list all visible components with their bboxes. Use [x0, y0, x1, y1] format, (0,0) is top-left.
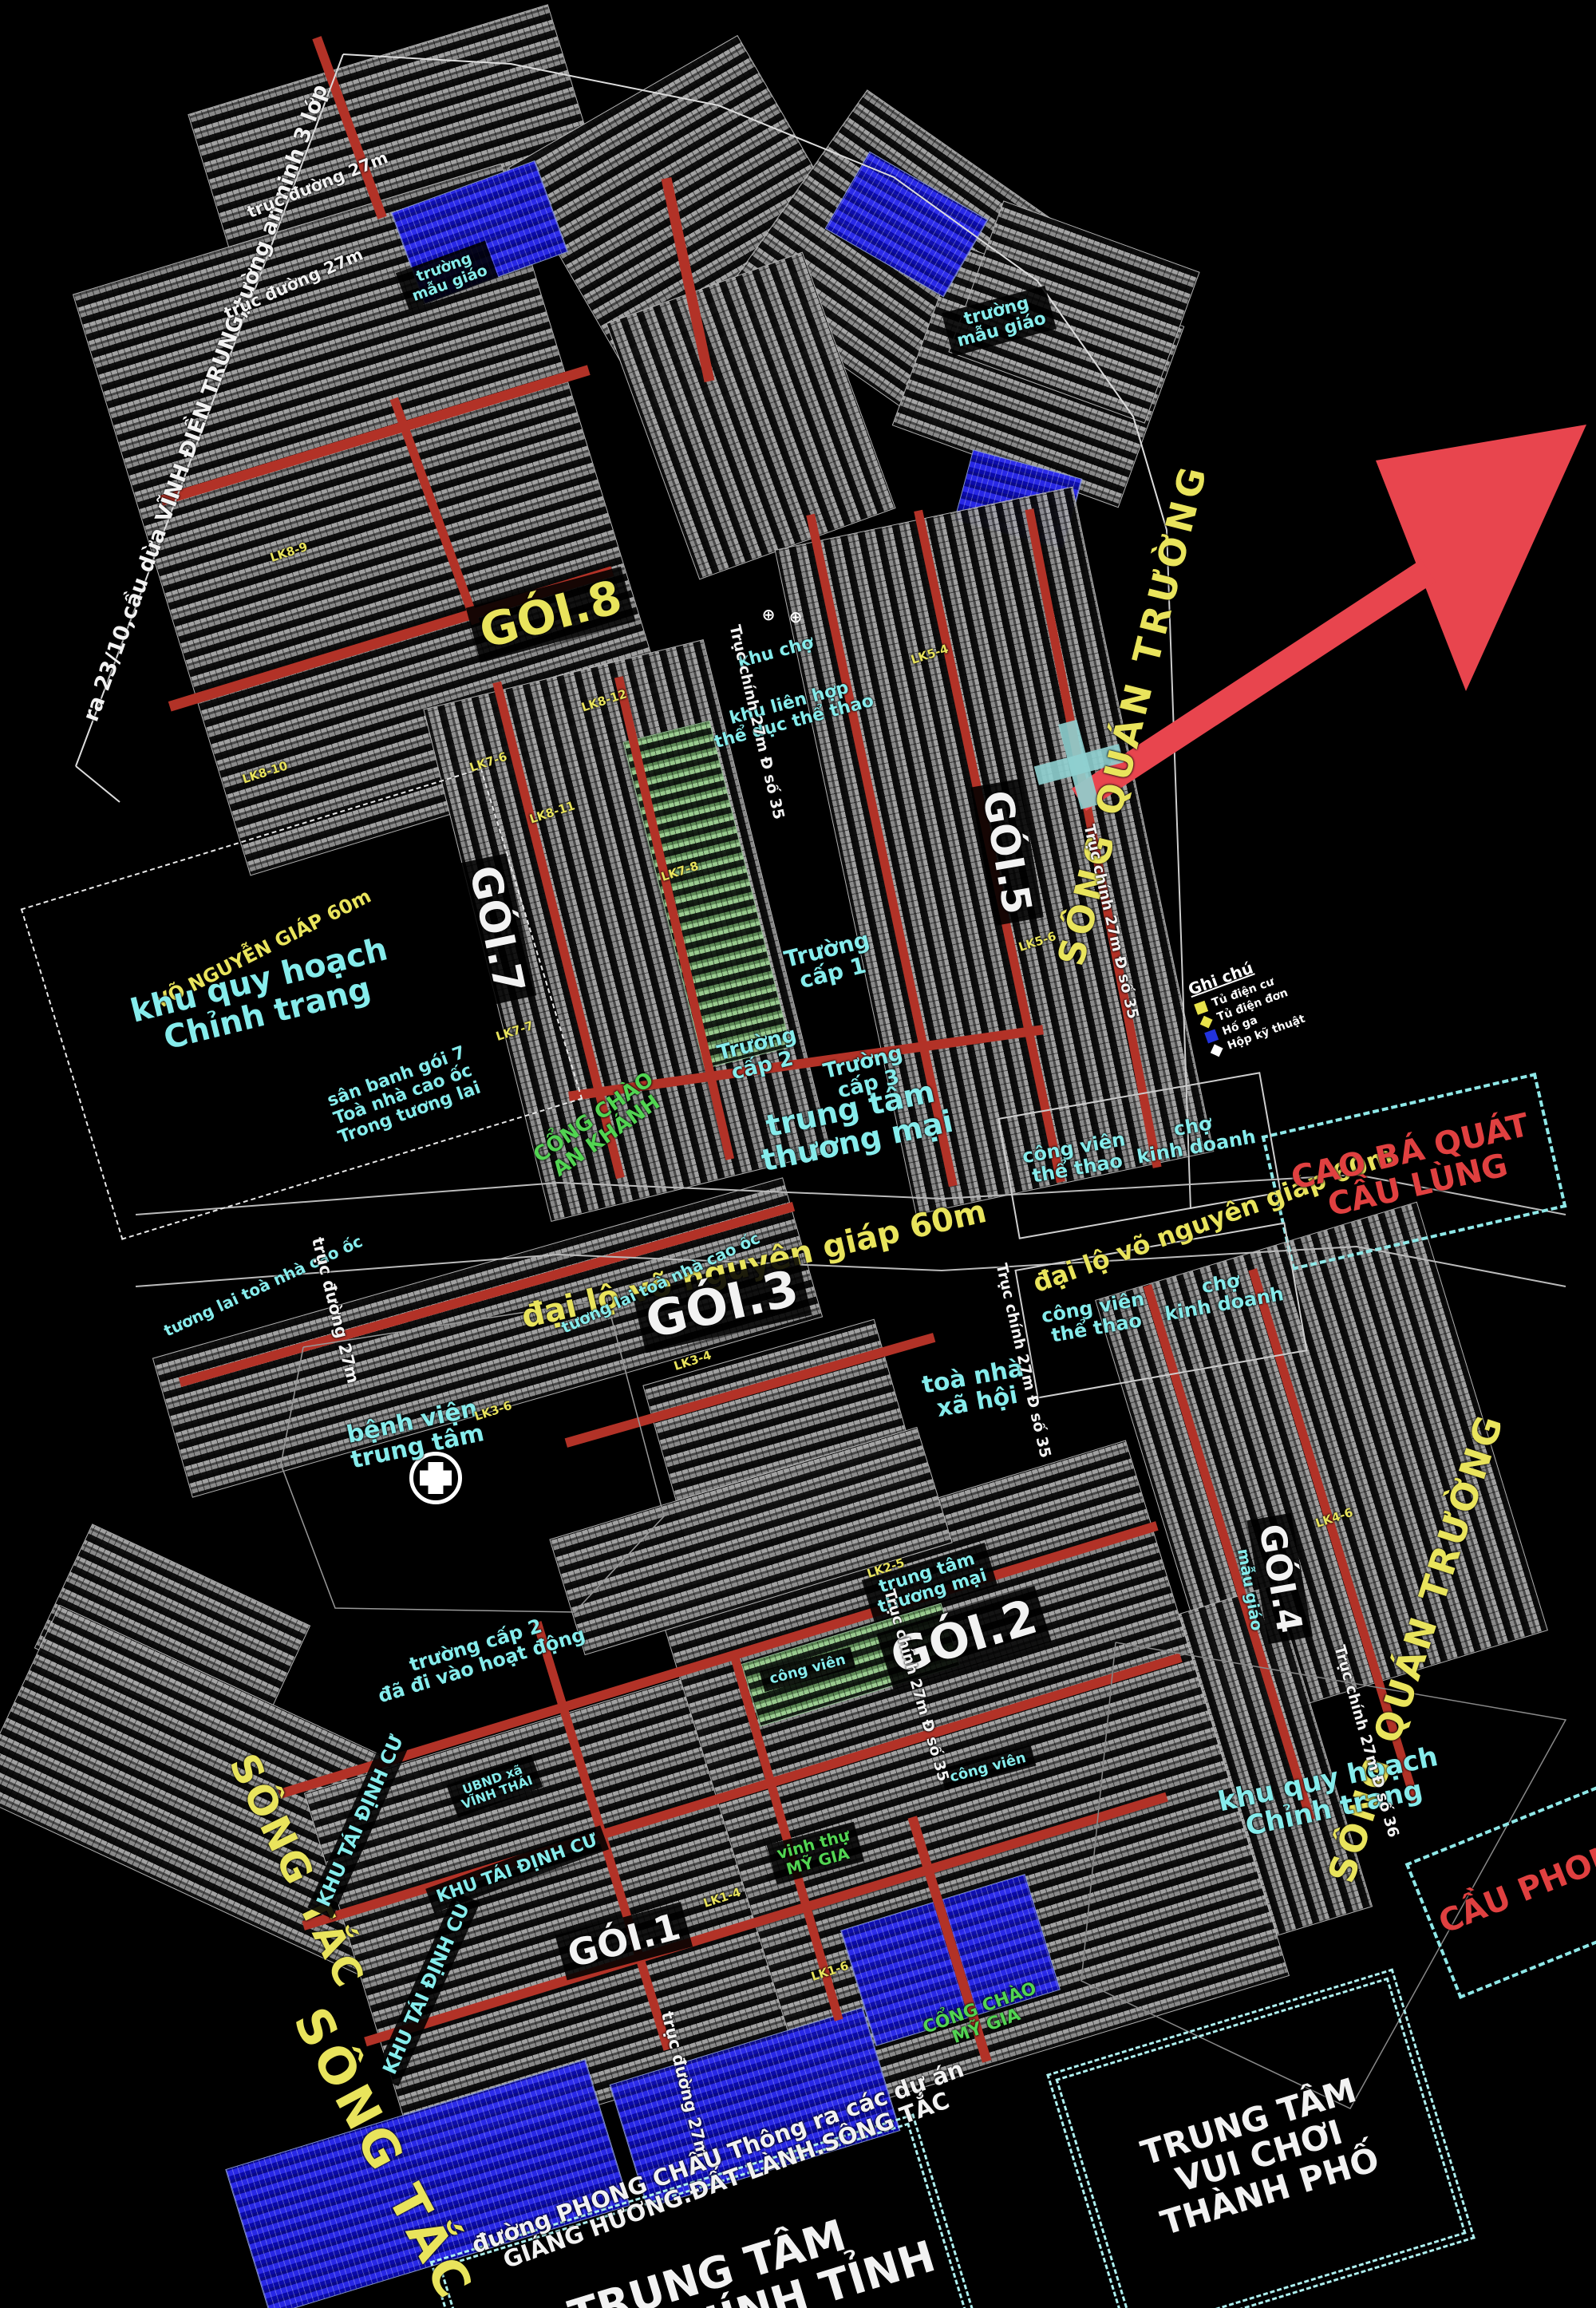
- circle-plus-icon: ⊕: [762, 605, 776, 624]
- legend-swatch-icon: [1211, 1044, 1223, 1057]
- cross-bar: [420, 1470, 452, 1485]
- legend-swatch-icon: [1200, 1016, 1213, 1029]
- site-boundary-line: [76, 766, 120, 802]
- red-arrow-head-icon: [1376, 425, 1586, 691]
- circle-plus-icon: ⊕: [789, 607, 803, 626]
- map-stage: ⊕⊕SÔNG QUÁN TRƯỜNGSÔNG QUÁN TRƯỜNGSÔNG T…: [0, 0, 1596, 2308]
